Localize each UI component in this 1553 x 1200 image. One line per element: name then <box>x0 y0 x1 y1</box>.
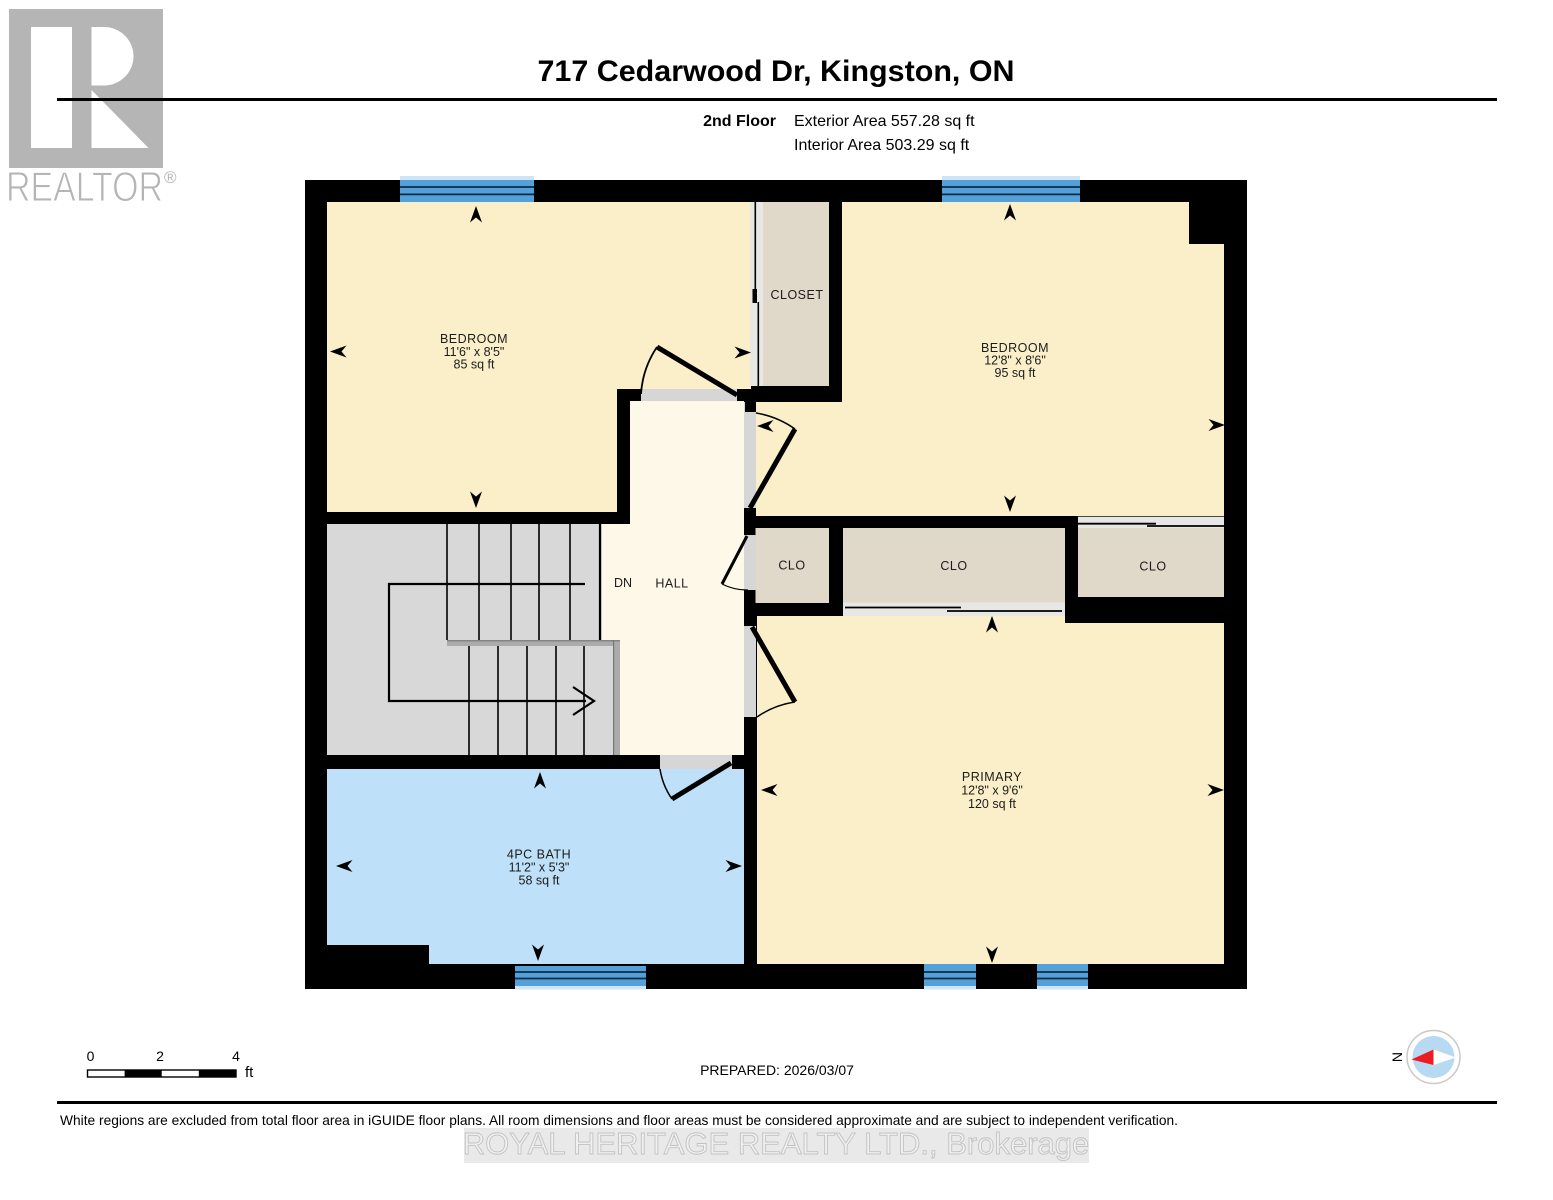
svg-text:0: 0 <box>87 1048 95 1064</box>
svg-text:CLO: CLO <box>1139 560 1166 574</box>
svg-text:120 sq ft: 120 sq ft <box>968 797 1016 811</box>
svg-text:REALTOR: REALTOR <box>6 163 163 210</box>
svg-text:58 sq ft: 58 sq ft <box>519 874 561 888</box>
svg-text:95 sq ft: 95 sq ft <box>995 366 1037 380</box>
svg-text:CLO: CLO <box>940 559 967 573</box>
svg-text:4PC BATH: 4PC BATH <box>507 848 571 862</box>
svg-text:Interior Area 503.29 sq ft: Interior Area 503.29 sq ft <box>794 137 970 154</box>
svg-text:2: 2 <box>156 1048 164 1064</box>
svg-text:BEDROOM: BEDROOM <box>440 332 508 346</box>
svg-text:DN: DN <box>614 576 632 590</box>
svg-text:PRIMARY: PRIMARY <box>962 770 1022 784</box>
svg-text:12'8" x 9'6": 12'8" x 9'6" <box>961 784 1023 798</box>
svg-text:ROYAL HERITAGE REALTY LTD., Br: ROYAL HERITAGE REALTY LTD., Brokerage <box>463 1126 1090 1161</box>
svg-text:CLO: CLO <box>778 559 805 573</box>
svg-text:2nd Floor: 2nd Floor <box>703 113 776 130</box>
svg-text:Exterior Area 557.28 sq ft: Exterior Area 557.28 sq ft <box>794 113 975 130</box>
svg-text:N: N <box>1389 1052 1405 1062</box>
svg-text:11'2" x 5'3": 11'2" x 5'3" <box>509 861 570 875</box>
svg-text:4: 4 <box>232 1048 240 1064</box>
svg-text:CLOSET: CLOSET <box>770 288 823 302</box>
svg-text:717 Cedarwood Dr, Kingston, ON: 717 Cedarwood Dr, Kingston, ON <box>538 55 1015 88</box>
svg-text:ft: ft <box>245 1064 254 1081</box>
svg-text:HALL: HALL <box>655 577 688 591</box>
svg-text:®: ® <box>164 168 177 187</box>
svg-text:85 sq ft: 85 sq ft <box>454 358 496 372</box>
svg-text:PREPARED: 2026/03/07: PREPARED: 2026/03/07 <box>700 1062 854 1078</box>
